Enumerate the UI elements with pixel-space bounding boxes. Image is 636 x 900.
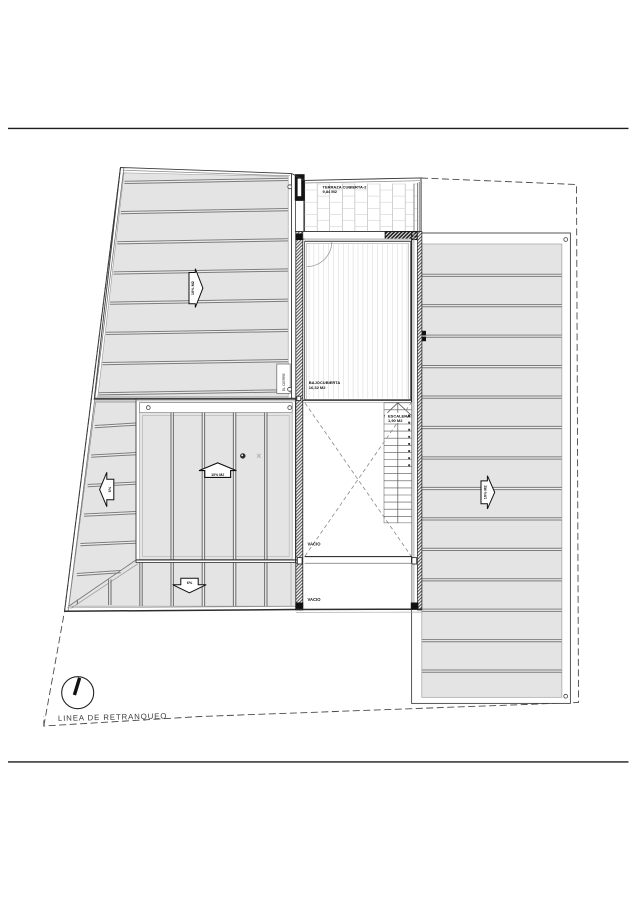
- svg-text:6%: 6%: [187, 581, 193, 585]
- svg-text:VACIO: VACIO: [308, 597, 322, 602]
- svg-text:VACIO: VACIO: [308, 541, 322, 546]
- svg-text:16,32 M2: 16,32 M2: [309, 385, 326, 390]
- svg-text:EL CIERRE: EL CIERRE: [282, 372, 286, 391]
- svg-text:9,84 M2: 9,84 M2: [323, 189, 338, 194]
- svg-text:6%: 6%: [108, 486, 112, 492]
- svg-text:1,90 M2: 1,90 M2: [388, 418, 403, 423]
- svg-text:10% M2: 10% M2: [211, 473, 224, 477]
- svg-text:10% M2: 10% M2: [483, 485, 487, 499]
- svg-text:LINEA DE RETRANQUEO: LINEA DE RETRANQUEO: [58, 712, 168, 723]
- svg-text:10% M2: 10% M2: [191, 281, 195, 295]
